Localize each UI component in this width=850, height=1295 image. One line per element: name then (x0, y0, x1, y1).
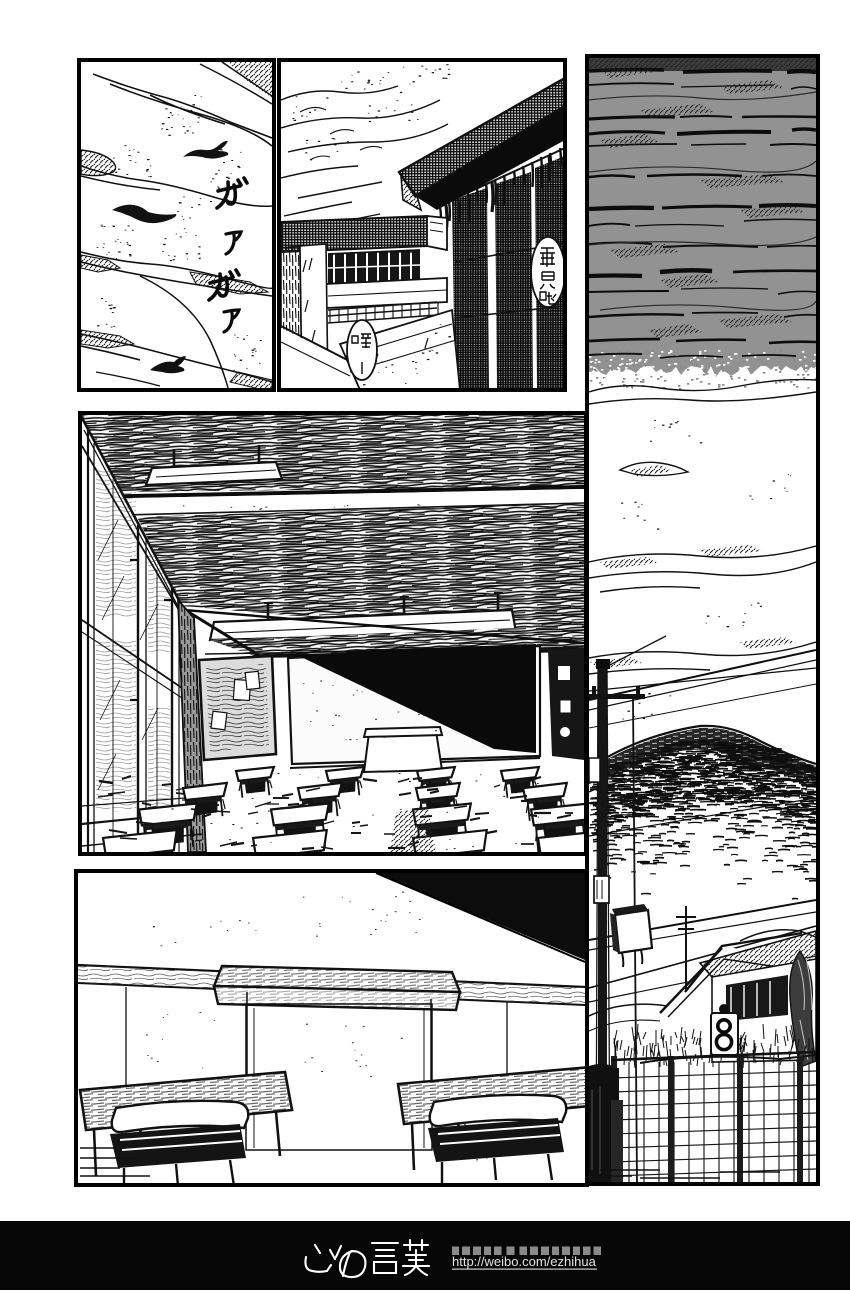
svg-text:http://weibo.com/ezhihua: http://weibo.com/ezhihua (452, 1254, 597, 1269)
